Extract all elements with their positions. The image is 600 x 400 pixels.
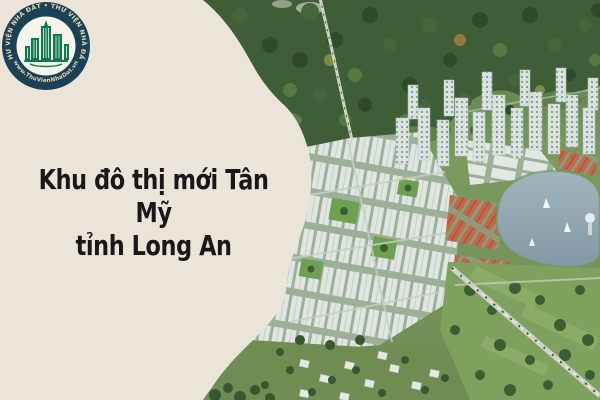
headline-line2: tỉnh Long An: [34, 229, 272, 262]
thu-vien-nha-dat-logo: THƯ VIỆN NHÀ ĐẤT • THƯ VIỆN NHÀ ĐẤT ★ ww…: [0, 0, 92, 92]
headline: Khu đô thị mới Tân Mỹ tỉnh Long An: [34, 163, 272, 262]
headline-line1: Khu đô thị mới Tân Mỹ: [34, 163, 272, 229]
thumbnail-banner: Khu đô thị mới Tân Mỹ tỉnh Long An: [0, 0, 600, 400]
